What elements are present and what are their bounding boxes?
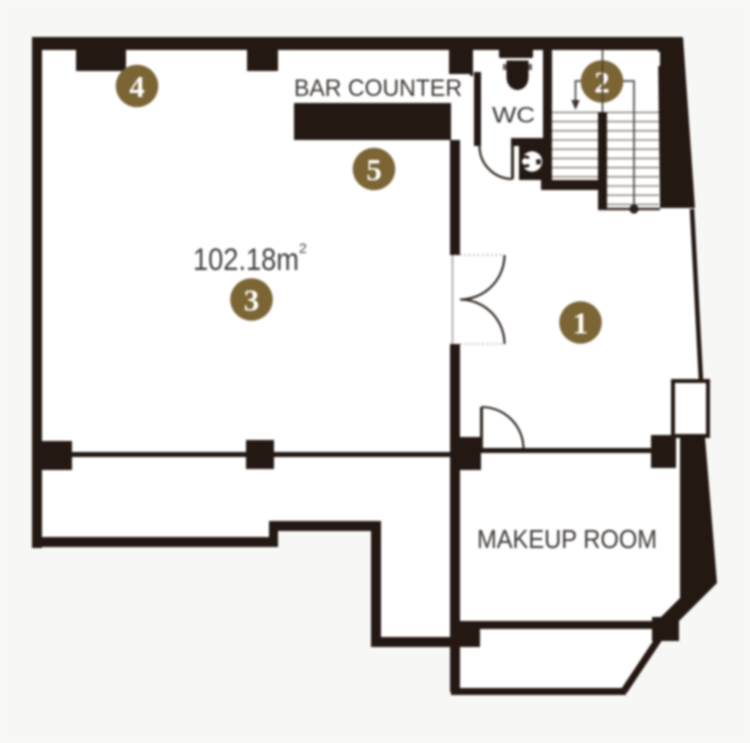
svg-text:2: 2	[299, 240, 307, 256]
svg-text:3: 3	[244, 283, 260, 318]
svg-text:102.18m: 102.18m	[193, 241, 299, 277]
svg-text:4: 4	[129, 69, 145, 104]
svg-text:WC: WC	[492, 103, 535, 128]
svg-text:5: 5	[366, 152, 382, 187]
svg-text:BAR COUNTER: BAR COUNTER	[294, 75, 462, 102]
svg-text:1: 1	[573, 306, 589, 341]
svg-text:MAKEUP ROOM: MAKEUP ROOM	[477, 524, 657, 554]
